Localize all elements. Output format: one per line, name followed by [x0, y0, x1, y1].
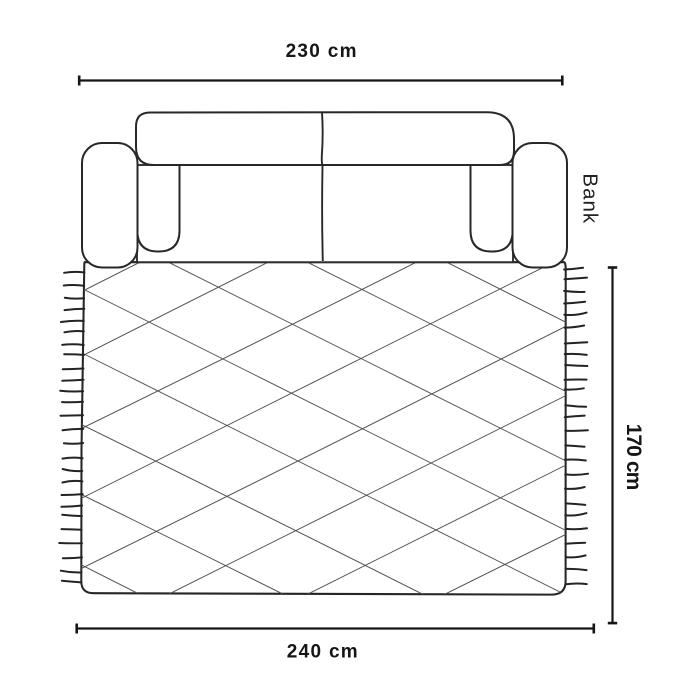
svg-text:170 cm: 170 cm	[622, 424, 645, 490]
svg-text:240 cm: 240 cm	[287, 641, 359, 662]
svg-text:Bank: Bank	[579, 173, 602, 224]
svg-text:230 cm: 230 cm	[286, 41, 358, 62]
